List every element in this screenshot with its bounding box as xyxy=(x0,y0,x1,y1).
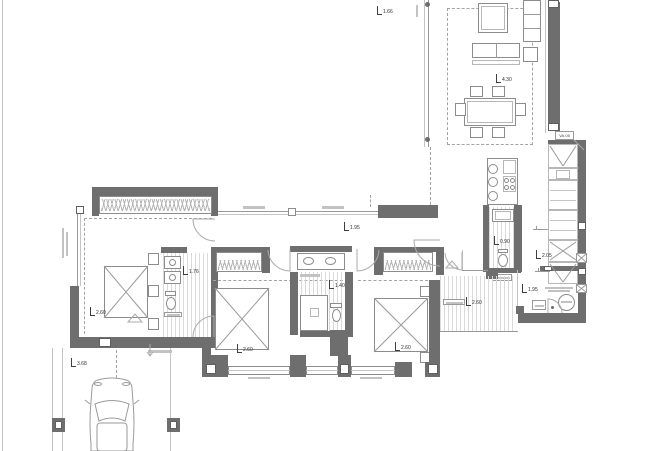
circle-fixture xyxy=(303,257,314,265)
dashed-line xyxy=(430,147,431,205)
wall-segment xyxy=(425,2,430,7)
dashed-line xyxy=(84,218,85,334)
bed xyxy=(104,266,148,318)
toilet-bowl xyxy=(166,297,176,310)
thin-line xyxy=(80,214,81,286)
line xyxy=(218,211,378,212)
level-marker: 1.95 xyxy=(344,222,360,231)
wall-segment xyxy=(436,247,444,275)
dining-chair xyxy=(515,103,526,116)
meter-box xyxy=(576,253,587,263)
micro-text xyxy=(416,5,418,17)
window-header-wall xyxy=(92,187,218,196)
light-box xyxy=(556,170,570,179)
wall-segment xyxy=(290,272,298,335)
door-arc xyxy=(193,219,215,241)
wall-segment xyxy=(262,247,270,273)
paper-edge-line xyxy=(2,0,3,451)
drawing-shape xyxy=(95,383,102,386)
wall-post xyxy=(578,222,586,230)
wall-segment xyxy=(211,187,218,216)
burner xyxy=(510,185,515,190)
wall-segment xyxy=(92,187,99,216)
drawing-shape: VA.05 xyxy=(556,132,573,139)
level-value: 2.05 xyxy=(542,253,552,259)
level-value: 1.76 xyxy=(189,269,199,275)
thin-line xyxy=(550,190,576,191)
level-symbol xyxy=(536,250,541,259)
door-jamb xyxy=(288,208,296,216)
wall-post xyxy=(99,338,111,347)
level-value: 2.60 xyxy=(472,300,482,306)
wall-segment xyxy=(345,272,353,335)
zigzag-pattern xyxy=(385,260,431,270)
car xyxy=(85,378,139,451)
hall-wall xyxy=(378,205,438,218)
wall-post xyxy=(544,266,552,271)
level-value: 0.90 xyxy=(500,239,510,245)
wall-post xyxy=(76,206,84,214)
micro-text xyxy=(300,274,320,277)
level-value: 1.66 xyxy=(383,9,393,15)
level-value: 2.60 xyxy=(401,345,411,351)
wall-post xyxy=(548,0,559,8)
room-label xyxy=(443,299,465,305)
circle-fixture xyxy=(169,259,176,266)
burner xyxy=(504,178,509,183)
door-arc xyxy=(445,252,462,270)
thin-line xyxy=(462,250,463,270)
micro-text xyxy=(322,206,344,209)
dining-chair xyxy=(470,127,483,138)
level-value: 2.60 xyxy=(243,347,253,353)
micro-text xyxy=(148,350,172,353)
thin-line xyxy=(550,200,576,201)
side-table xyxy=(523,47,538,62)
level-marker: 1.76 xyxy=(183,266,199,275)
triangle-mark xyxy=(446,261,458,268)
circle-fixture xyxy=(169,274,176,281)
master-bottom-wall xyxy=(70,337,218,348)
level-value: 1.40 xyxy=(335,283,345,289)
dining-chair xyxy=(492,127,505,138)
wall-post xyxy=(548,123,559,131)
thin-line xyxy=(218,214,378,215)
room-label xyxy=(164,312,182,317)
level-value: 1.95 xyxy=(528,287,538,293)
level-value: 1.95 xyxy=(350,225,360,231)
level-marker: 2.60 xyxy=(466,297,482,306)
level-marker: 3.68 xyxy=(71,358,87,367)
dashed-line xyxy=(84,218,212,219)
level-symbol xyxy=(344,222,349,231)
level-marker: 1.95 xyxy=(522,284,538,293)
level-symbol xyxy=(237,344,242,353)
kitchen-appliance xyxy=(503,160,516,174)
line xyxy=(440,331,518,332)
nightstand xyxy=(148,318,159,330)
wall-segment xyxy=(551,306,554,309)
bedroom3-right-wall xyxy=(429,280,440,365)
level-symbol xyxy=(71,358,76,367)
toilet-bowl xyxy=(498,254,508,267)
micro-text xyxy=(62,228,64,258)
level-marker: 2.60 xyxy=(237,344,253,353)
closet-cell xyxy=(548,180,578,210)
level-symbol xyxy=(90,307,95,316)
level-marker: 2.60 xyxy=(90,307,106,316)
wall-post xyxy=(578,268,586,275)
drawing-shape xyxy=(123,383,130,386)
micro-text xyxy=(248,377,270,379)
floor-plan: VA.05 xyxy=(0,0,645,451)
dashed-line xyxy=(116,350,117,378)
line xyxy=(523,28,541,29)
wall-segment xyxy=(395,362,412,377)
line xyxy=(523,14,541,15)
level-marker: 4.30 xyxy=(496,74,512,83)
level-marker: 1.40 xyxy=(329,280,345,289)
dining-chair xyxy=(492,86,505,97)
drawing-shape xyxy=(90,378,134,451)
thin-line xyxy=(228,370,290,371)
thin-line xyxy=(550,220,576,221)
thin-line xyxy=(424,0,425,147)
dashed-line xyxy=(358,280,428,281)
level-symbol xyxy=(496,74,501,83)
drawing-shape xyxy=(97,423,127,451)
level-symbol xyxy=(183,266,188,275)
thin-line xyxy=(170,348,171,451)
exterior-wall-left xyxy=(70,286,79,338)
wall-post xyxy=(340,364,349,374)
thin-line xyxy=(52,348,53,451)
light-box xyxy=(472,60,520,65)
light-box xyxy=(310,308,319,317)
level-symbol xyxy=(466,297,471,306)
thin-line xyxy=(306,370,338,371)
appliance-box xyxy=(532,300,546,310)
line xyxy=(536,226,537,230)
level-value: 2.60 xyxy=(96,310,106,316)
micro-text xyxy=(561,301,572,303)
sink-bowl xyxy=(488,164,498,174)
sink-bowl xyxy=(488,191,498,201)
exterior-wall-right-lower xyxy=(578,140,586,323)
door-arc xyxy=(268,249,290,271)
drawing-shape xyxy=(95,401,129,422)
micro-text xyxy=(548,290,570,292)
zigzag-pattern xyxy=(218,260,260,270)
micro-text xyxy=(167,314,180,316)
micro-text xyxy=(545,287,573,289)
level-marker: 2.60 xyxy=(395,342,411,351)
wall-segment xyxy=(290,355,306,377)
line xyxy=(462,270,488,271)
sofa xyxy=(523,0,541,42)
level-value: 4.30 xyxy=(502,77,512,83)
wall-segment xyxy=(290,246,352,252)
window-shutter-pattern xyxy=(101,199,210,211)
level-symbol xyxy=(377,6,382,15)
toilet-tank xyxy=(498,249,508,253)
thin-line xyxy=(62,348,63,451)
wall-post xyxy=(428,364,438,374)
level-symbol xyxy=(522,284,527,293)
toilet-tank xyxy=(330,303,342,308)
micro-text xyxy=(535,305,544,307)
light-box xyxy=(467,101,513,123)
wc-wall xyxy=(514,205,522,272)
level-marker: 1.66 xyxy=(377,6,393,15)
wall-post xyxy=(170,421,177,429)
level-symbol xyxy=(494,236,499,245)
toilet-tank xyxy=(165,291,176,296)
wall-post xyxy=(55,421,62,429)
burner xyxy=(504,185,509,190)
closet-cell xyxy=(548,144,578,168)
circle-fixture xyxy=(325,257,336,265)
micro-text xyxy=(66,232,68,256)
thin-line xyxy=(545,0,546,133)
exterior-wall-right xyxy=(548,2,560,131)
dashed-line xyxy=(370,195,371,207)
level-symbol xyxy=(329,280,334,289)
dining-chair xyxy=(470,86,483,97)
thin-line xyxy=(550,230,576,231)
wall-segment xyxy=(518,313,586,323)
light-box xyxy=(481,6,505,30)
toilet-bowl xyxy=(332,309,341,322)
door-tag: VA.05 xyxy=(555,131,574,140)
micro-text xyxy=(446,302,463,304)
sliding-glass-door xyxy=(428,0,429,147)
light-box xyxy=(495,211,511,220)
nightstand xyxy=(148,253,159,265)
wall-segment xyxy=(330,330,348,356)
line xyxy=(496,43,497,58)
level-symbol xyxy=(395,342,400,351)
closet-cell xyxy=(548,240,578,262)
drawing-shape xyxy=(85,400,139,404)
meter-box xyxy=(576,284,587,293)
bed xyxy=(215,288,269,350)
wall-segment xyxy=(516,306,524,314)
nightstand xyxy=(148,285,159,297)
burner xyxy=(510,178,515,183)
line xyxy=(538,268,539,272)
wall-post xyxy=(206,364,216,374)
dining-chair xyxy=(455,103,466,116)
thin-line xyxy=(351,370,395,371)
micro-text xyxy=(360,377,382,379)
closet-cell xyxy=(548,210,578,240)
level-value: 3.68 xyxy=(77,361,87,367)
micro-text xyxy=(243,206,265,209)
level-marker: 2.05 xyxy=(536,250,552,259)
level-marker: 0.90 xyxy=(494,236,510,245)
line xyxy=(77,214,78,286)
sink-bowl xyxy=(488,177,498,187)
wall-segment xyxy=(425,137,430,142)
